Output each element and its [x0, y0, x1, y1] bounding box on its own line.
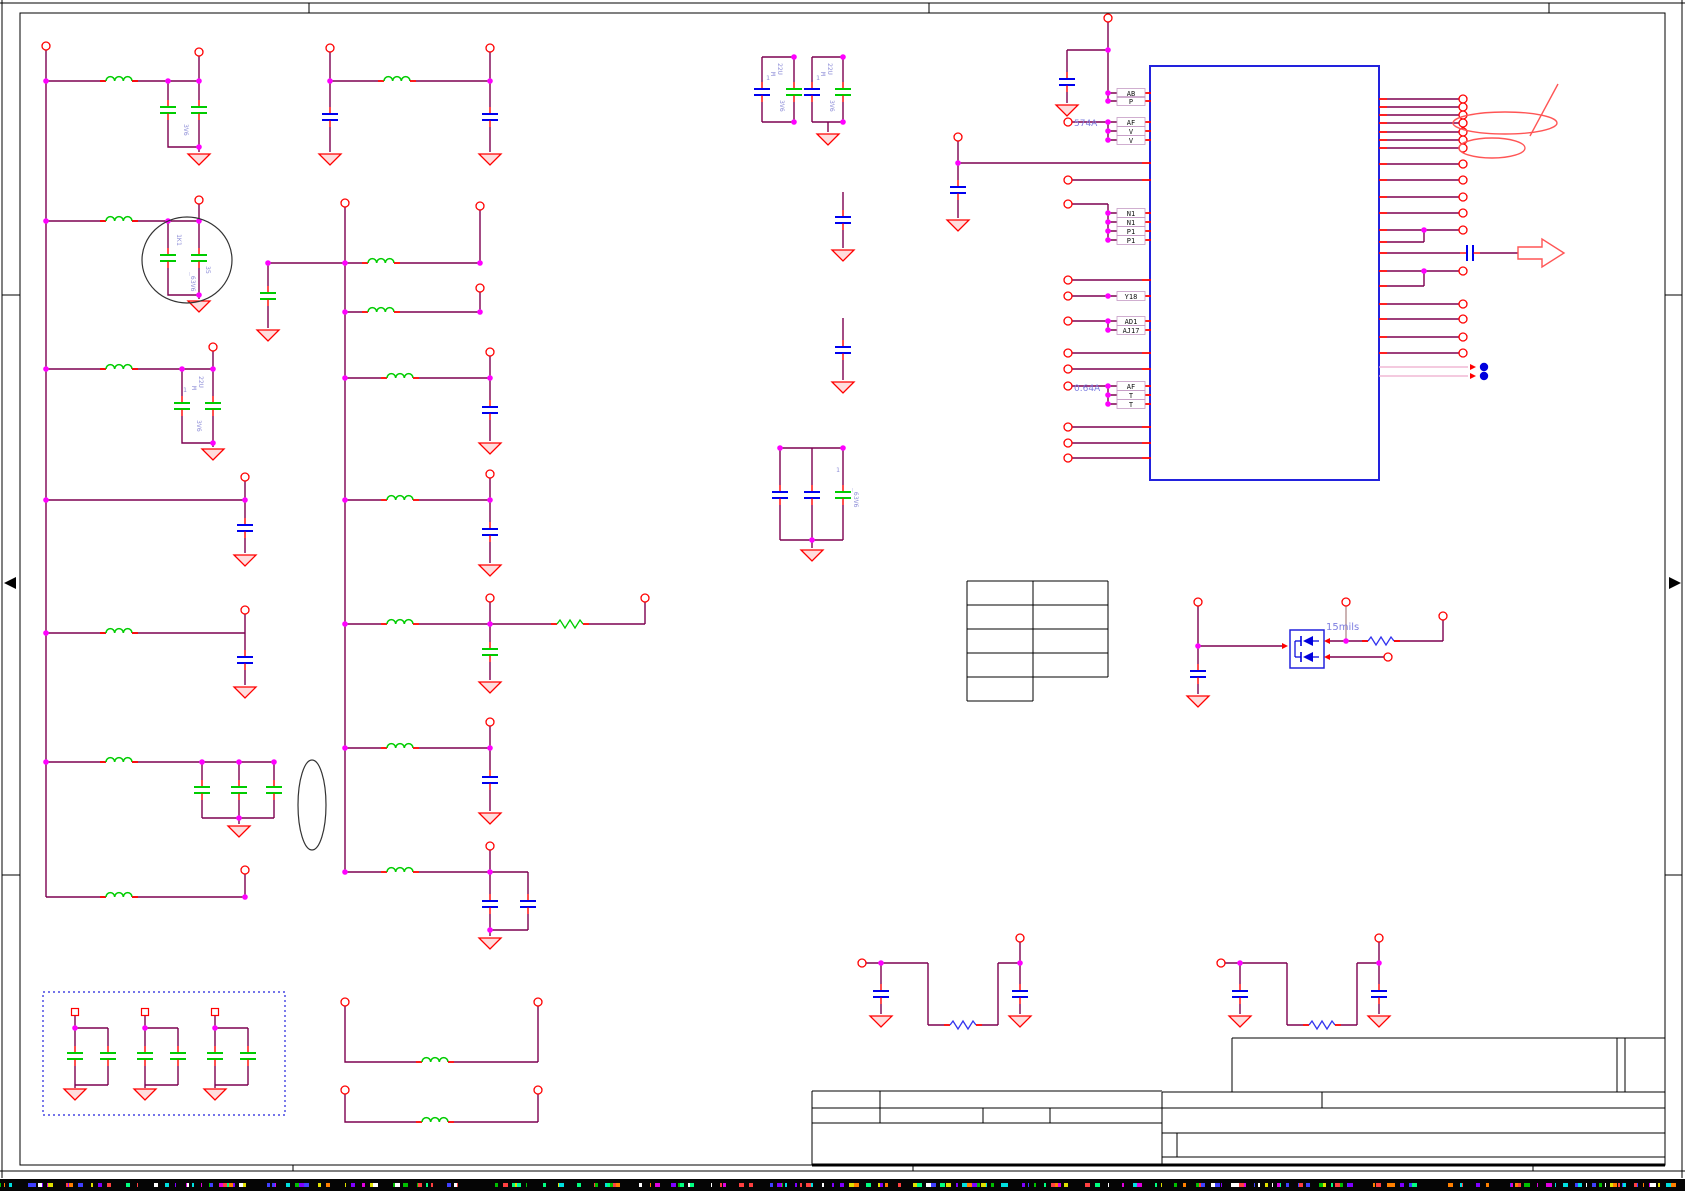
ground-symbol [479, 813, 501, 824]
power-pin[interactable] [326, 44, 334, 52]
capacitor[interactable] [207, 1046, 223, 1066]
capacitor[interactable] [804, 82, 820, 102]
junction-dot [809, 537, 815, 543]
ground-symbol [479, 154, 501, 165]
junction-dot [1105, 128, 1111, 134]
junction-dot [1343, 638, 1349, 644]
cap-ref: 1 [816, 74, 820, 82]
net-pin[interactable] [1459, 300, 1467, 308]
junction-dot [327, 78, 333, 84]
junction-dot [487, 621, 493, 627]
power-pin[interactable] [195, 196, 203, 204]
left-edge-marker-icon [4, 577, 16, 589]
power-pin[interactable] [1016, 934, 1024, 942]
ic-pin-label: AD1 [1125, 318, 1138, 326]
cap-value: _63V6 [189, 272, 197, 292]
ground-symbol [234, 555, 256, 566]
capacitor[interactable] [950, 180, 966, 200]
resistor[interactable] [1362, 637, 1400, 645]
power-pin[interactable] [1439, 612, 1447, 620]
cap-value: 3V6 [778, 100, 786, 112]
junction-dot [342, 745, 348, 751]
cap-value: M [819, 72, 827, 76]
ground-symbol [234, 687, 256, 698]
junction-dot [236, 815, 242, 821]
capacitor[interactable] [754, 82, 770, 102]
ground-symbol [319, 154, 341, 165]
junction-dot [43, 759, 49, 765]
decoupling-cap-box[interactable] [43, 992, 285, 1115]
power-pin[interactable] [341, 1086, 349, 1094]
cap-value: M [769, 72, 777, 76]
junction-dot [1421, 268, 1427, 274]
ground-symbol [479, 682, 501, 693]
ground-symbol [479, 565, 501, 576]
cap-value: 3V6 [828, 100, 836, 112]
capacitor[interactable] [804, 485, 820, 505]
junction-dot [1105, 137, 1111, 143]
capacitor[interactable] [482, 642, 498, 662]
probe-arrow-icon [1470, 364, 1476, 370]
ic-pin-label: V [1129, 128, 1134, 136]
junction-dot [165, 78, 171, 84]
capacitor[interactable] [231, 780, 247, 800]
cap-ref: 1 [766, 74, 770, 82]
capacitor[interactable] [1460, 245, 1480, 261]
power-pin[interactable] [534, 1086, 542, 1094]
right-edge-marker-icon [1669, 577, 1681, 589]
junction-dot [236, 759, 242, 765]
ferrite-bead[interactable] [381, 744, 419, 748]
power-pin[interactable] [534, 998, 542, 1006]
left-power-rail-section[interactable]: 3V6 1K1 35 _63V6 22U M 1 3V6 [42, 42, 326, 900]
junction-dot [477, 309, 483, 315]
junction-dot [487, 78, 493, 84]
capacitor[interactable] [1012, 984, 1028, 1004]
capacitor[interactable] [772, 485, 788, 505]
ground-symbol [204, 1089, 226, 1100]
net-pin[interactable] [1217, 959, 1225, 967]
capacitor[interactable] [482, 400, 498, 420]
power-pin[interactable] [341, 998, 349, 1006]
current-annotation: 574A [1074, 119, 1098, 129]
probe-arrow-icon [1470, 373, 1476, 379]
net-pin[interactable] [1459, 333, 1467, 341]
probe-dot-icon[interactable] [1480, 372, 1488, 380]
net-pin[interactable] [858, 959, 866, 967]
junction-dot [196, 78, 202, 84]
ground-symbol [479, 443, 501, 454]
ground-symbol [188, 154, 210, 165]
net-pin[interactable] [1459, 209, 1467, 217]
junction-dot [342, 309, 348, 315]
ground-symbol [1368, 1016, 1390, 1027]
ferrite-bead[interactable] [416, 1058, 454, 1062]
ground-symbol [134, 1089, 156, 1100]
ground-symbol [1187, 696, 1209, 707]
junction-dot [1105, 119, 1111, 125]
junction-dot [271, 759, 277, 765]
resistor[interactable] [551, 620, 589, 628]
power-pin[interactable] [1194, 598, 1202, 606]
net-pin[interactable] [1459, 95, 1467, 103]
current-annotation: 0.64A [1074, 384, 1101, 394]
capacitor[interactable] [174, 396, 190, 416]
net-pin[interactable] [1064, 365, 1072, 373]
ferrite-bead[interactable] [378, 77, 416, 81]
ic-pin-label: Y18 [1125, 293, 1138, 301]
top-pi-filter[interactable] [319, 44, 501, 165]
junction-dot [487, 375, 493, 381]
output-filter-right[interactable] [1217, 934, 1390, 1029]
ic-pin-label: P [1129, 98, 1133, 106]
ground-symbol [832, 382, 854, 393]
ferrite-bead[interactable] [381, 868, 419, 872]
capacitor[interactable] [191, 248, 207, 268]
capacitor[interactable] [191, 100, 207, 120]
power-pin[interactable] [241, 866, 249, 874]
net-pin[interactable] [1064, 176, 1072, 184]
ic-right-pins[interactable] [1379, 84, 1564, 380]
ic-pin-label: T [1129, 392, 1134, 400]
ground-symbol [1009, 1016, 1031, 1027]
junction-dot [878, 960, 884, 966]
ferrite-bead[interactable] [100, 365, 138, 369]
power-pin[interactable] [476, 284, 484, 292]
power-pin[interactable] [212, 1009, 219, 1016]
net-pin[interactable] [1064, 292, 1072, 300]
junction-dot [1105, 219, 1111, 225]
junction-dot [210, 440, 216, 446]
junction-dot [1105, 210, 1111, 216]
capacitor[interactable] [266, 780, 282, 800]
junction-dot [242, 497, 248, 503]
output-filter-left[interactable] [858, 934, 1031, 1029]
net-pin[interactable] [1459, 315, 1467, 323]
junction-dot [487, 745, 493, 751]
net-pin[interactable] [1064, 382, 1072, 390]
net-pin[interactable] [1459, 267, 1467, 275]
ferrite-bead[interactable] [100, 77, 138, 81]
power-pin[interactable] [1104, 14, 1112, 22]
power-pin[interactable] [486, 842, 494, 850]
capacitor[interactable] [1371, 984, 1387, 1004]
junction-dot [1105, 383, 1111, 389]
junction-dot [791, 54, 797, 60]
net-pin[interactable] [1459, 176, 1467, 184]
ic-left-pins[interactable]: 574A 0.64A AB P AF V V N1 N1 P1 P1 Y18 A… [947, 14, 1151, 462]
review-ellipse-annotation [1459, 138, 1525, 158]
power-pin[interactable] [42, 42, 50, 50]
power-pin[interactable] [72, 1009, 79, 1016]
power-pin[interactable] [486, 594, 494, 602]
power-pin[interactable] [641, 594, 649, 602]
ferrite-bead[interactable] [100, 758, 138, 762]
junction-dot [1105, 293, 1111, 299]
ic-pin-label: AF [1127, 383, 1135, 391]
net-pin[interactable] [1064, 454, 1072, 462]
capacitor[interactable] [786, 82, 802, 102]
ground-symbol [64, 1089, 86, 1100]
ferrite-bead[interactable] [381, 620, 419, 624]
main-ic[interactable]: 574A 0.64A AB P AF V V N1 N1 P1 P1 Y18 A… [947, 14, 1564, 480]
ground-symbol [870, 1016, 892, 1027]
capacitor[interactable] [835, 210, 851, 230]
power-pin[interactable] [241, 473, 249, 481]
ic-pin-label: P1 [1127, 228, 1135, 236]
junction-dot [1421, 227, 1427, 233]
power-pin[interactable] [195, 48, 203, 56]
capacitor[interactable] [237, 650, 253, 670]
net-pin[interactable] [1064, 423, 1072, 431]
capacitor[interactable] [482, 894, 498, 914]
power-pin[interactable] [486, 718, 494, 726]
net-pin[interactable] [1064, 200, 1072, 208]
junction-dot [179, 366, 185, 372]
cap-value: M [190, 386, 198, 390]
junction-dot [487, 869, 493, 875]
junction-dot [955, 160, 961, 166]
ic-pin-label: T [1129, 401, 1134, 409]
title-block [812, 1038, 1665, 1165]
ferrite-bead[interactable] [100, 629, 138, 633]
power-pin[interactable] [142, 1009, 149, 1016]
junction-dot [1017, 960, 1023, 966]
junction-dot [1376, 960, 1382, 966]
junction-dot [791, 119, 797, 125]
capacitor[interactable] [322, 107, 338, 127]
cap-value: _63V6 [852, 488, 860, 508]
junction-dot [1195, 643, 1201, 649]
cap-ref: 1K1 [175, 234, 183, 246]
cap-ref: 1 [183, 386, 187, 394]
capacitor[interactable] [835, 340, 851, 360]
ground-symbol [257, 330, 279, 341]
junction-dot [1105, 392, 1111, 398]
junction-dot [342, 869, 348, 875]
ic-pin-label: P1 [1127, 237, 1135, 245]
ground-symbol [801, 550, 823, 561]
junction-dot [142, 1025, 148, 1031]
schematic-canvas: 3V6 1K1 35 _63V6 22U M 1 3V6 [0, 0, 1685, 1191]
junction-dot [487, 497, 493, 503]
capacitor[interactable] [205, 396, 221, 416]
net-pin[interactable] [1384, 653, 1392, 661]
junction-dot [477, 260, 483, 266]
capacitor[interactable] [160, 248, 176, 268]
junction-dot [342, 497, 348, 503]
capacitor[interactable] [482, 522, 498, 542]
junction-dot [72, 1025, 78, 1031]
net-pin[interactable] [1064, 439, 1072, 447]
ic-body[interactable] [1150, 66, 1379, 480]
capacitor[interactable] [170, 1046, 186, 1066]
junction-dot [1105, 98, 1111, 104]
junction-dot [777, 445, 783, 451]
ground-symbol [947, 220, 969, 231]
capacitor[interactable] [482, 770, 498, 790]
ferrite-bead[interactable] [381, 374, 419, 378]
junction-dot [43, 630, 49, 636]
power-pin[interactable] [486, 44, 494, 52]
ferrite-bead[interactable] [362, 259, 400, 263]
ground-symbol [202, 449, 224, 460]
net-pin[interactable] [1064, 276, 1072, 284]
mid-cap-bank[interactable]: 1 _63V6 [772, 445, 860, 561]
review-circle-annotation [298, 760, 326, 850]
junction-dot [487, 927, 493, 933]
cap-ref: 1 [836, 466, 840, 474]
capacitor[interactable] [835, 485, 851, 505]
net-pin[interactable] [1459, 103, 1467, 111]
cap-value: 3V6 [195, 420, 203, 432]
schematic-sheet: 3V6 1K1 35 _63V6 22U M 1 3V6 [0, 0, 1685, 1191]
junction-dot [43, 366, 49, 372]
junction-dot [196, 292, 202, 298]
capacitor[interactable] [260, 286, 276, 306]
junction-dot [196, 144, 202, 150]
pin-arrow-icon [1324, 654, 1330, 660]
junction-dot [1237, 960, 1243, 966]
junction-dot [1105, 401, 1111, 407]
capacitor[interactable] [1190, 664, 1206, 684]
resistor[interactable] [944, 1021, 982, 1029]
ic-pin-label: AF [1127, 119, 1135, 127]
power-pin[interactable] [341, 199, 349, 207]
ferrite-bead[interactable] [416, 1118, 454, 1122]
esd-protection-circuit[interactable]: 15mils [1187, 598, 1447, 707]
power-pin[interactable] [1375, 934, 1383, 942]
junction-dot [43, 78, 49, 84]
status-noise-strip [0, 1179, 1685, 1191]
junction-dot [840, 445, 846, 451]
sheet-frame [0, 0, 1685, 1178]
capacitor[interactable] [1059, 72, 1075, 92]
net-pin[interactable] [1459, 119, 1467, 127]
net-pin[interactable] [1064, 118, 1072, 126]
diode-symbol [1295, 636, 1319, 662]
net-pin[interactable] [1064, 349, 1072, 357]
junction-dot [1105, 47, 1111, 53]
capacitor[interactable] [137, 1046, 153, 1066]
ic-pin-label: V [1129, 137, 1134, 145]
capacitor[interactable] [100, 1046, 116, 1066]
ground-symbol [1056, 105, 1078, 116]
capacitor[interactable] [1232, 984, 1248, 1004]
junction-dot [242, 894, 248, 900]
junction-dot [342, 621, 348, 627]
top-mid-cap-bank[interactable]: 22U M 1 3V6 22U M 1 3V6 [754, 54, 854, 393]
cap-value: 3V6 [182, 124, 190, 136]
power-pin[interactable] [954, 133, 962, 141]
junction-dot [199, 759, 205, 765]
ground-symbol [832, 250, 854, 261]
ferrite-bead[interactable] [362, 308, 400, 312]
ground-symbol [1229, 1016, 1251, 1027]
junction-dot [1105, 228, 1111, 234]
junction-dot [212, 1025, 218, 1031]
probe-dot-icon[interactable] [1480, 363, 1488, 371]
net-pin[interactable] [1459, 193, 1467, 201]
capacitor[interactable] [67, 1046, 83, 1066]
review-slash-annotation [1530, 84, 1558, 136]
capacitor[interactable] [873, 984, 889, 1004]
pin-arrow-icon [1324, 638, 1330, 644]
junction-dot [1105, 327, 1111, 333]
ground-symbol [228, 826, 250, 837]
pin-table [967, 581, 1108, 701]
junction-dot [342, 260, 348, 266]
junction-dot [1105, 90, 1111, 96]
power-pin[interactable] [209, 343, 217, 351]
power-pin[interactable] [486, 348, 494, 356]
off-page-arrow-icon[interactable] [1518, 239, 1564, 267]
power-pin[interactable] [486, 470, 494, 478]
power-pin[interactable] [476, 202, 484, 210]
capacitor[interactable] [835, 82, 851, 102]
ferrite-bead[interactable] [381, 496, 419, 500]
capacitor[interactable] [520, 894, 536, 914]
ground-symbol [817, 134, 839, 145]
junction-dot [265, 260, 271, 266]
ic-pin-label: N1 [1127, 219, 1135, 227]
capacitor[interactable] [240, 1046, 256, 1066]
junction-dot [840, 54, 846, 60]
ic-pin-label: AJ17 [1123, 327, 1140, 335]
junction-dot [1105, 318, 1111, 324]
ferrite-bead[interactable] [100, 893, 138, 897]
net-pin[interactable] [1064, 317, 1072, 325]
net-pin[interactable] [1459, 349, 1467, 357]
junction-dot [342, 375, 348, 381]
junction-dot [43, 218, 49, 224]
review-circle-annotation [142, 217, 232, 303]
capacitor[interactable] [194, 780, 210, 800]
junction-dot [840, 119, 846, 125]
ferrite-bead[interactable] [100, 217, 138, 221]
pin-arrow-icon [1282, 643, 1288, 649]
junction-dot [210, 366, 216, 372]
trace-width-annotation: 15mils [1326, 622, 1359, 633]
cap-value: 35 [204, 266, 212, 274]
net-pin[interactable] [1459, 160, 1467, 168]
capacitor[interactable] [160, 100, 176, 120]
ground-symbol [479, 938, 501, 949]
junction-dot [43, 497, 49, 503]
junction-dot [1105, 237, 1111, 243]
mid-filter-ladder-section[interactable] [257, 199, 649, 1122]
power-pin[interactable] [241, 606, 249, 614]
ic-pin-label: N1 [1127, 210, 1135, 218]
capacitor[interactable] [482, 107, 498, 127]
resistor[interactable] [1303, 1021, 1341, 1029]
capacitor[interactable] [237, 518, 253, 538]
power-pin[interactable] [1342, 598, 1350, 606]
net-pin[interactable] [1459, 226, 1467, 234]
